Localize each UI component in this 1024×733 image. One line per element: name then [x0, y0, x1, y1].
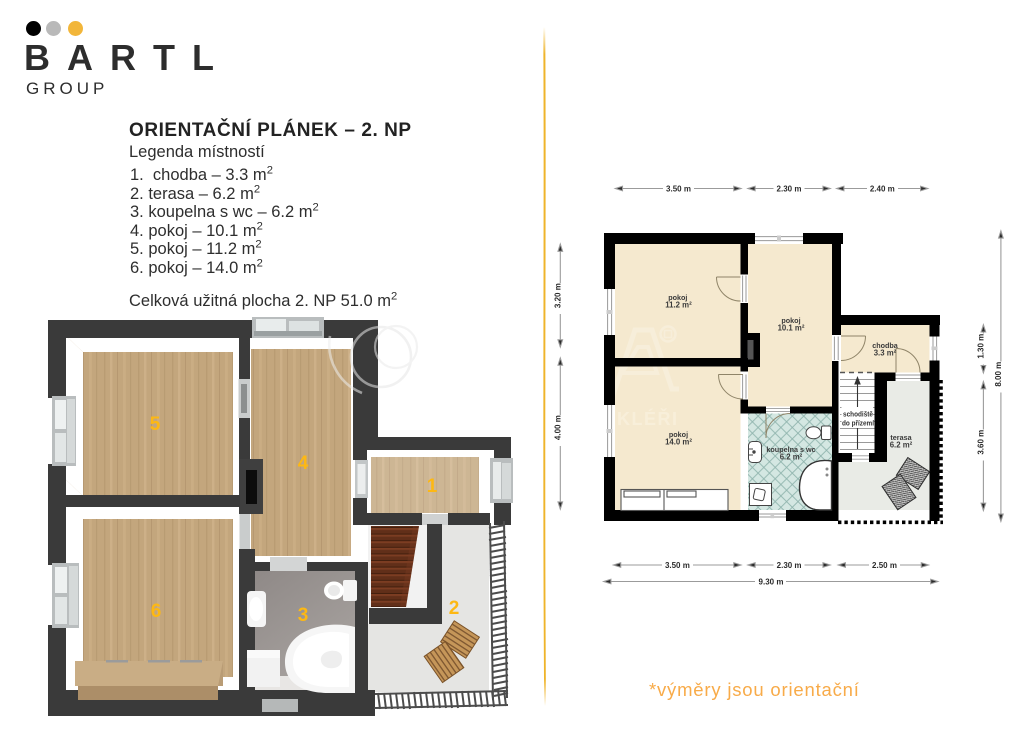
- svg-text:schodiště: schodiště: [843, 412, 873, 419]
- svg-text:6.2 m²: 6.2 m²: [890, 441, 913, 450]
- svg-text:3.20 m: 3.20 m: [553, 283, 562, 308]
- svg-text:KLÉŘI: KLÉŘI: [617, 408, 679, 429]
- svg-text:2: 2: [449, 598, 460, 619]
- svg-text:6.2 m²: 6.2 m²: [780, 453, 803, 462]
- svg-text:8.00 m: 8.00 m: [994, 362, 1003, 387]
- svg-text:3.60 m: 3.60 m: [976, 430, 985, 455]
- svg-text:3.50 m: 3.50 m: [665, 561, 690, 570]
- svg-text:3.50 m: 3.50 m: [666, 184, 691, 193]
- svg-text:2.50 m: 2.50 m: [872, 561, 897, 570]
- svg-text:4: 4: [298, 453, 309, 474]
- svg-text:11.2 m²: 11.2 m²: [665, 301, 692, 310]
- svg-text:14.0 m²: 14.0 m²: [665, 438, 692, 447]
- svg-text:1: 1: [427, 476, 438, 497]
- svg-text:5: 5: [150, 414, 161, 435]
- svg-text:1.30 m: 1.30 m: [976, 334, 985, 359]
- svg-text:2.40 m: 2.40 m: [870, 184, 895, 193]
- svg-text:3: 3: [298, 605, 309, 626]
- svg-text:9.30 m: 9.30 m: [759, 577, 784, 586]
- svg-text:2.30 m: 2.30 m: [777, 561, 802, 570]
- svg-text:do přízemí: do přízemí: [842, 421, 875, 428]
- svg-text:10.1 m²: 10.1 m²: [778, 323, 805, 332]
- svg-text:6: 6: [151, 601, 162, 622]
- svg-text:3.3 m²: 3.3 m²: [874, 349, 897, 358]
- svg-text:2.30 m: 2.30 m: [777, 184, 802, 193]
- svg-text:4.00 m: 4.00 m: [553, 415, 562, 440]
